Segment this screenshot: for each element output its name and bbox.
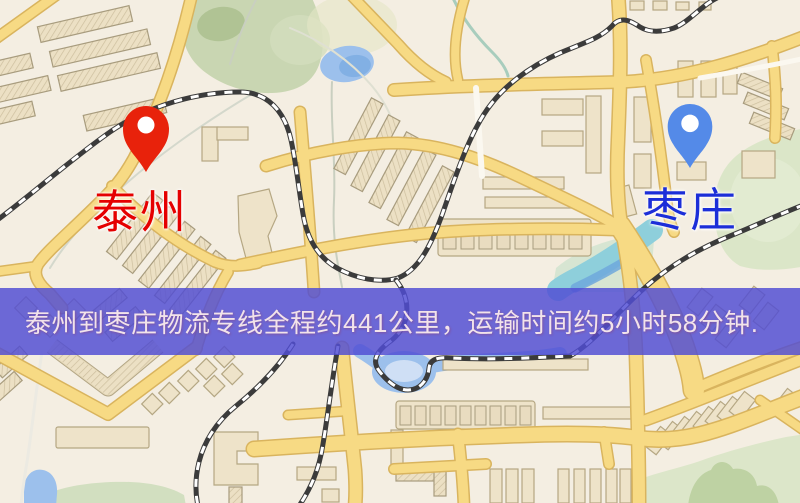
route-info-banner: 泰州到枣庄物流专线全程约441公里，运输时间约5小时58分钟. (0, 288, 800, 355)
destination-pin-icon[interactable] (668, 104, 713, 168)
route-info-text: 泰州到枣庄物流专线全程约441公里，运输时间约5小时58分钟. (25, 303, 758, 340)
origin-city-label: 泰州 (92, 176, 188, 242)
destination-city-label: 枣庄 (642, 174, 738, 240)
map-canvas[interactable] (0, 0, 800, 503)
map-screenshot: 泰州 枣庄 泰州到枣庄物流专线全程约441公里，运输时间约5小时58分钟. (0, 0, 800, 503)
